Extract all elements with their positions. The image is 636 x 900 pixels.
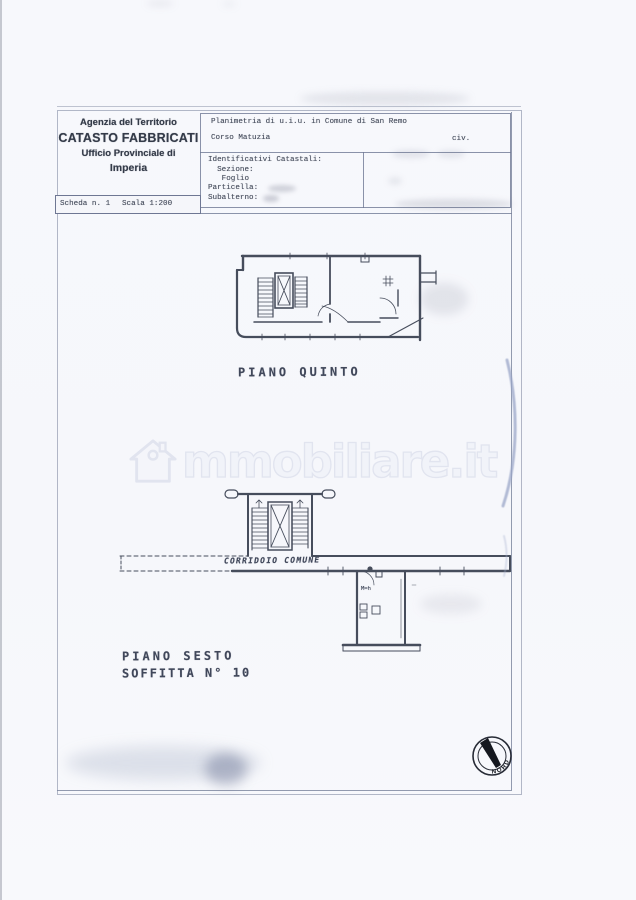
attic-room-note: M=h: [361, 586, 371, 592]
plan1-outer-walls: [237, 253, 420, 340]
plan1-stairs: [258, 277, 307, 317]
planimetria-civic: civ.: [452, 135, 470, 145]
catastali-particella: Particella:: [208, 184, 258, 194]
house-icon: [128, 436, 178, 486]
scheda-scale: Scala 1:200: [122, 200, 172, 210]
catastali-subalterno: Subalterno:: [208, 194, 258, 204]
label-corridoio-comune: CORRIDOIO COMUNE: [223, 555, 321, 565]
agency-line3: Ufficio Provinciale di: [57, 148, 200, 159]
caption-soffitta: SOFFITTA N° 10: [122, 666, 251, 681]
plan1-elevator: [275, 273, 293, 308]
plan2-attic-room: [357, 571, 416, 645]
scan-smudge-top-edge: [146, 1, 174, 6]
header-vertical-divider: [363, 152, 364, 208]
scanned-cadastral-sheet: { "header": { "agency": { "line1": "Agen…: [0, 0, 636, 900]
agency-line1: Agenzia del Territorio: [57, 117, 200, 128]
plan1-balcony-bracket: [420, 271, 436, 284]
plan1-bathroom: [380, 290, 398, 318]
planimetria-street: Corso Matuzia: [211, 134, 270, 144]
agency-header-block: Agenzia del Territorio CATASTO FABBRICAT…: [57, 114, 200, 174]
inner-frame-bottom-line: [57, 790, 512, 791]
plan1-partition: [318, 256, 330, 322]
caption-piano-sesto: PIANO SESTO: [122, 649, 235, 664]
scan-left-edge-shadow: [0, 0, 2, 900]
header-horizontal-divider: [200, 152, 511, 153]
scheda-number: Scheda n. 1: [60, 200, 110, 210]
plan2-base-plate: [343, 645, 420, 651]
agency-line4: Imperia: [57, 162, 200, 174]
floor-plan-fifth: [230, 246, 445, 346]
plan2-stair-block: [225, 490, 335, 556]
watermark-text: mmobiliare.it: [182, 435, 496, 488]
floor-plan-sixth: [60, 486, 520, 661]
scan-smudge-top-edge-2: [222, 2, 236, 6]
watermark: mmobiliare.it: [128, 430, 523, 492]
plan1-corridor: [237, 306, 423, 340]
catastali-title: Identificativi Catastali:: [208, 156, 322, 166]
scan-smudge-top: [300, 92, 470, 105]
planimetria-title: Planimetria di u.i.u. in Comune di San R…: [211, 118, 407, 128]
plan2-elevator: [268, 502, 292, 550]
compass-nord: NORD: [468, 732, 518, 782]
agency-line2: CATASTO FABBRICATI: [57, 131, 200, 145]
caption-piano-quinto: PIANO QUINTO: [238, 365, 361, 380]
frame-top-double-line: [57, 106, 521, 107]
plan1-hash-symbol: [383, 276, 393, 286]
